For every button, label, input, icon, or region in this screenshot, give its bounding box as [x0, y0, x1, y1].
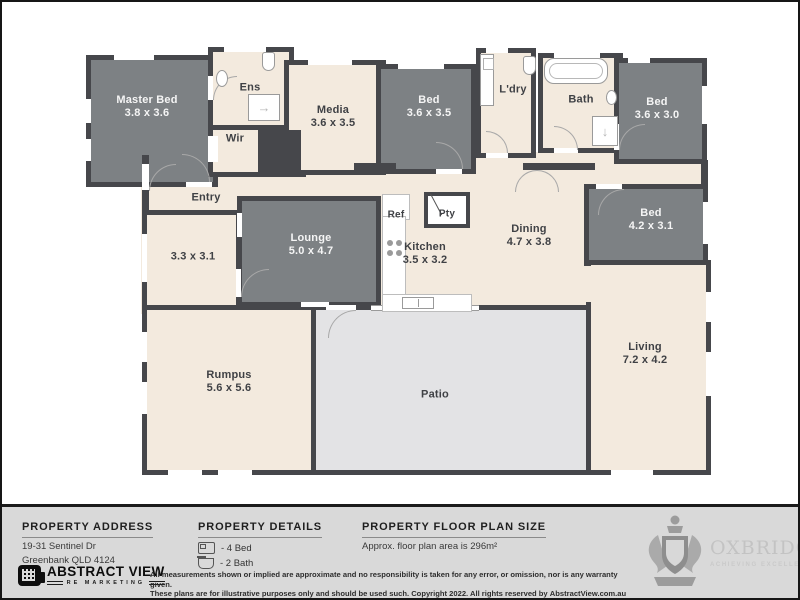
window: [398, 64, 444, 69]
window: [706, 292, 711, 322]
label-bed-2: Bed 3.6 x 3.5: [407, 94, 452, 120]
footer: PROPERTY ADDRESS 19-31 Sentinel Dr Green…: [2, 507, 798, 598]
address-line-1: 19-31 Sentinel Dr: [22, 541, 153, 552]
room-dims: 5.6 x 5.6: [206, 382, 251, 395]
toilet-icon: [262, 52, 275, 71]
disclaimer: All measurements shown or implied are ap…: [150, 570, 632, 599]
label-bed-4: Bed 4.2 x 3.1: [629, 207, 674, 233]
room-dims: 5.0 x 4.7: [289, 245, 334, 258]
shower-arrow: →: [258, 100, 271, 115]
label-rumpus: Rumpus 5.6 x 5.6: [206, 369, 251, 395]
room-name: Bed: [407, 94, 452, 107]
label-living: Living 7.2 x 4.2: [623, 341, 668, 367]
property-details-heading: PROPERTY DETAILS: [198, 521, 322, 538]
shower-icon: ↓: [592, 116, 618, 146]
door-opening: [486, 153, 508, 158]
room-name: Ref: [388, 209, 405, 222]
sink-icon: [606, 90, 617, 105]
window: [114, 55, 154, 60]
shower-icon: →: [248, 94, 280, 121]
oxbridge-text: OXBRIDGE ACHIEVING EXCELLENCE: [710, 537, 798, 568]
room-dims: 3.6 x 3.5: [407, 107, 452, 120]
door-opening: [237, 213, 242, 237]
bed-icon: [198, 542, 215, 554]
door-opening: [186, 182, 212, 187]
window: [703, 202, 708, 244]
label-kitchen: Kitchen 3.5 x 3.2: [403, 241, 448, 267]
abstract-view-text: ABSTRACT VIEW RE MARKETING: [47, 565, 165, 586]
door-opening: [301, 302, 329, 307]
room-dims: 3.5 x 3.2: [403, 254, 448, 267]
disclaimer-brand: AbstractView.com.au: [550, 589, 626, 598]
label-store: 3.3 x 3.1: [171, 251, 216, 264]
room-dims: 4.2 x 3.1: [629, 220, 674, 233]
window: [224, 47, 266, 52]
room-name: Rumpus: [206, 369, 251, 382]
bathtub-basin: [549, 63, 603, 79]
living-opening-patch: [586, 266, 592, 302]
room-name: Patio: [421, 389, 449, 402]
window: [142, 332, 147, 362]
bathtub-icon: [544, 58, 608, 84]
label-ensuite: Ens: [240, 82, 261, 95]
baths-row: - 2 Bath: [198, 558, 322, 569]
wall-segment: [523, 163, 595, 170]
label-wir: Wir: [226, 133, 244, 146]
floor-plan: → ↓ Master Bed 3.8 x 3.6 Ens Wir Media 3…: [86, 44, 718, 484]
room-name: Media: [311, 104, 356, 117]
room-name: Bed: [629, 207, 674, 220]
oven-icon: [402, 297, 434, 309]
property-address-heading: PROPERTY ADDRESS: [22, 521, 153, 538]
beds-count: - 4 Bed: [221, 543, 252, 554]
label-lounge: Lounge 5.0 x 4.7: [289, 232, 334, 258]
room-dims: 4.7 x 3.8: [507, 236, 552, 249]
wall-segment: [354, 163, 396, 170]
room-name: Lounge: [289, 232, 334, 245]
window: [702, 86, 707, 124]
room-living: [586, 260, 711, 475]
room-dims: 3.3 x 3.1: [171, 251, 216, 264]
bath-icon: [198, 558, 214, 569]
floor-plan-size-text: Approx. floor plan area is 296m²: [362, 541, 546, 552]
abstract-view-subtitle: RE MARKETING: [47, 580, 165, 586]
room-name: Pty: [439, 208, 455, 221]
floor-plan-size-block: PROPERTY FLOOR PLAN SIZE Approx. floor p…: [362, 517, 546, 552]
cooktop-icon: [387, 240, 393, 246]
window: [142, 382, 147, 414]
disclaimer-line-2: These plans are for illustrative purpose…: [150, 589, 550, 598]
label-bath: Bath: [568, 94, 593, 107]
window: [706, 352, 711, 396]
camera-icon: [18, 565, 41, 586]
label-dining: Dining 4.7 x 3.8: [507, 223, 552, 249]
label-master-bed: Master Bed 3.8 x 3.6: [116, 94, 177, 120]
window: [142, 234, 147, 282]
door-opening: [596, 184, 622, 189]
abstract-view-logo: ABSTRACT VIEW RE MARKETING: [18, 565, 165, 586]
room-dims: 3.8 x 3.6: [116, 107, 177, 120]
room-name: Bed: [635, 96, 680, 109]
property-details-block: PROPERTY DETAILS - 4 Bed - 2 Bath: [198, 517, 322, 569]
room-name: L'dry: [499, 84, 526, 97]
window: [86, 139, 91, 161]
label-laundry: L'dry: [499, 84, 526, 97]
room-dims: 3.6 x 3.0: [635, 109, 680, 122]
property-address-block: PROPERTY ADDRESS 19-31 Sentinel Dr Green…: [22, 517, 153, 566]
laundry-bench: [480, 54, 494, 106]
label-entry: Entry: [191, 192, 220, 205]
window: [628, 58, 650, 63]
beds-row: - 4 Bed: [198, 542, 322, 554]
room-dims: 7.2 x 4.2: [623, 354, 668, 367]
room-dims: 3.6 x 3.5: [311, 117, 356, 130]
disclaimer-line-1: All measurements shown or implied are ap…: [150, 570, 618, 589]
room-name: Ens: [240, 82, 261, 95]
oxbridge-title: OXBRIDGE: [710, 537, 798, 559]
label-bed-3: Bed 3.6 x 3.0: [635, 96, 680, 122]
sink-icon: [216, 70, 228, 87]
window: [168, 470, 202, 475]
label-fridge: Ref: [388, 209, 405, 222]
label-media: Media 3.6 x 3.5: [311, 104, 356, 130]
label-patio: Patio: [421, 389, 449, 402]
room-name: Living: [623, 341, 668, 354]
toilet-icon: [523, 56, 536, 75]
oxbridge-crest-icon: [644, 513, 706, 597]
window: [86, 99, 91, 123]
abstract-view-title: ABSTRACT VIEW: [47, 565, 165, 578]
door-opening: [208, 136, 218, 162]
shower-arrow: ↓: [602, 124, 609, 139]
wall-segment: [701, 160, 708, 188]
window: [486, 48, 508, 53]
room-name: Bath: [568, 94, 593, 107]
room-name: Wir: [226, 133, 244, 146]
room-name: Entry: [191, 192, 220, 205]
floor-plan-page: → ↓ Master Bed 3.8 x 3.6 Ens Wir Media 3…: [0, 0, 800, 600]
wardrobe-block: [258, 130, 301, 172]
door-opening: [142, 164, 149, 190]
oxbridge-subtitle: ACHIEVING EXCELLENCE: [710, 562, 798, 568]
laundry-sink-icon: [483, 58, 494, 70]
oxbridge-logo: OXBRIDGE ACHIEVING EXCELLENCE: [638, 511, 798, 597]
window: [611, 470, 653, 475]
floor-plan-size-heading: PROPERTY FLOOR PLAN SIZE: [362, 521, 546, 538]
room-name: Kitchen: [403, 241, 448, 254]
room-name: Dining: [507, 223, 552, 236]
room-name: Master Bed: [116, 94, 177, 107]
window: [308, 60, 352, 65]
door-opening: [436, 169, 462, 174]
baths-count: - 2 Bath: [220, 558, 253, 569]
label-pantry: Pty: [439, 208, 455, 221]
window: [218, 470, 252, 475]
